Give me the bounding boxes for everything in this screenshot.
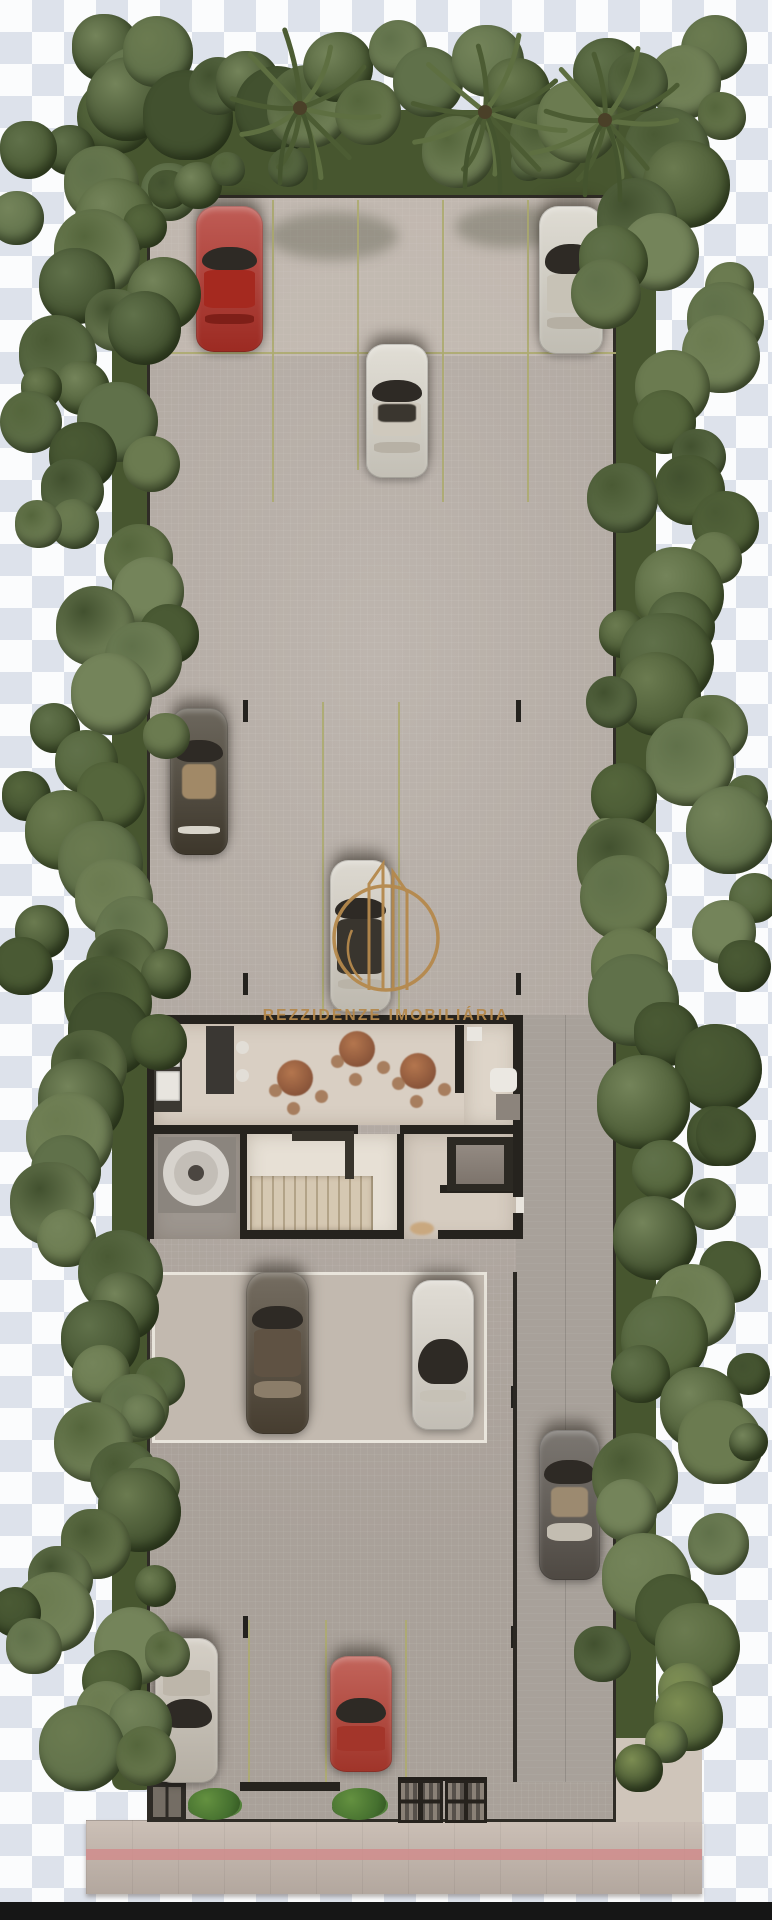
car-gray-right	[539, 1430, 600, 1580]
car-windshield	[544, 1460, 594, 1484]
pantry-sink	[490, 1068, 517, 1092]
building-wall	[397, 1134, 404, 1239]
bottom-black-bar	[0, 1902, 772, 1920]
dining-chair	[377, 1061, 390, 1074]
dining-chair	[269, 1084, 282, 1097]
bbq-grill	[398, 1780, 443, 1823]
tree-canopy	[574, 1626, 631, 1683]
entry-bush	[332, 1788, 386, 1820]
palm-trunk-icon	[478, 105, 492, 119]
site-plan-render: REZZIDENZE IMOBILIÁRIA	[0, 0, 772, 1920]
car-windshield	[336, 1698, 387, 1724]
emblem-tower-icon	[369, 864, 383, 990]
tree-canopy	[135, 1565, 177, 1607]
car-roof	[337, 1726, 384, 1752]
car-white-suv-covered	[412, 1280, 474, 1430]
stall-line-vertical	[325, 1620, 327, 1782]
palm-frond-icon	[478, 46, 486, 112]
car-roof	[254, 1329, 302, 1378]
car-white-sedan-top	[366, 344, 428, 478]
tree-canopy	[686, 786, 772, 873]
utility-box	[148, 1782, 186, 1822]
car-rear-window	[420, 1390, 466, 1402]
tree-canopy	[597, 1055, 690, 1148]
car-red-suv-top-left	[196, 206, 263, 352]
dining-table	[277, 1060, 313, 1096]
stall-tick	[243, 700, 248, 722]
palm-trunk-icon	[598, 113, 612, 127]
tree-canopy	[15, 500, 62, 547]
tree-canopy	[596, 1479, 657, 1540]
palm-tree	[205, 13, 395, 203]
stall-tick	[516, 700, 521, 722]
car-brown-covered	[246, 1272, 309, 1434]
kitchen-appliance	[156, 1071, 180, 1101]
car-windshield	[372, 380, 423, 401]
tree-canopy	[123, 436, 180, 493]
bbq-grill	[445, 1780, 487, 1823]
car-interior	[551, 1487, 588, 1517]
tree-canopy	[586, 676, 637, 727]
stall-line-vertical	[272, 352, 274, 502]
reception-bench	[292, 1131, 354, 1141]
palm-shadow	[268, 212, 398, 260]
dining-chair	[331, 1055, 344, 1068]
patio-rug-center	[188, 1165, 204, 1181]
car-red-bottom	[330, 1656, 392, 1772]
pantry-cabinet	[496, 1094, 520, 1120]
emblem-arc-icon	[348, 930, 362, 980]
brand-emblem: REZZIDENZE IMOBILIÁRIA	[246, 842, 526, 1032]
tree-canopy	[0, 191, 44, 246]
palm-frond-icon	[300, 67, 364, 108]
entry-bush	[188, 1788, 240, 1820]
tree-canopy	[571, 259, 641, 329]
bar-stool	[236, 1069, 249, 1082]
stall-line-vertical	[248, 1620, 250, 1782]
stall-line-vertical	[527, 200, 529, 352]
tree-canopy	[39, 1705, 126, 1792]
door-mark	[516, 1197, 524, 1213]
dining-chair	[410, 1095, 423, 1108]
car-rear-window	[178, 826, 221, 835]
tree-canopy	[688, 1513, 749, 1574]
building-wall	[438, 1230, 523, 1239]
brand-text: REZZIDENZE IMOBILIÁRIA	[263, 1007, 509, 1024]
tree-canopy	[587, 463, 657, 533]
palm-tree	[510, 25, 700, 215]
building-wall	[455, 1025, 464, 1093]
stall-line-vertical	[442, 352, 444, 502]
car-rear-window	[205, 314, 255, 324]
dining-table	[339, 1031, 375, 1067]
palm-frond-icon	[429, 65, 485, 112]
bar-stool	[236, 1041, 249, 1054]
car-windshield	[252, 1306, 304, 1329]
kitchen-island	[206, 1026, 234, 1094]
car-roof	[204, 270, 255, 308]
car-rear-window	[547, 1523, 592, 1541]
stall-line-vertical	[527, 352, 529, 502]
dining-chair	[438, 1083, 451, 1096]
tree-canopy	[632, 1140, 692, 1200]
building-wall	[240, 1134, 247, 1239]
car-rear-window	[254, 1381, 301, 1399]
stall-line-vertical	[272, 200, 274, 352]
stall-line-vertical	[357, 352, 359, 470]
dining-table	[400, 1053, 436, 1089]
building-wall	[243, 1230, 400, 1239]
brand-watermark: REZZIDENZE IMOBILIÁRIA	[246, 842, 526, 1032]
tree-canopy	[718, 940, 770, 992]
elevator-cab	[456, 1145, 504, 1184]
palm-frond-icon	[605, 120, 677, 124]
tree-canopy	[145, 1631, 190, 1676]
building-wall	[400, 1125, 523, 1134]
dining-chair	[315, 1090, 328, 1103]
car-rear-window	[374, 442, 420, 453]
car-windshield	[418, 1339, 469, 1384]
tree-canopy	[116, 1726, 176, 1786]
dining-chair	[349, 1073, 362, 1086]
lane-wall	[513, 1272, 517, 1782]
dining-chair	[287, 1102, 300, 1115]
tree-canopy	[108, 291, 181, 364]
sidewalk	[86, 1820, 702, 1894]
palm-frond-icon	[605, 120, 647, 168]
tree-canopy	[729, 1423, 767, 1461]
entry-wall	[240, 1782, 340, 1791]
staircase	[250, 1176, 373, 1230]
car-windshield	[202, 247, 257, 270]
stall-line-vertical	[442, 200, 444, 352]
stall-tick	[243, 1616, 248, 1638]
dining-chair	[392, 1077, 405, 1090]
palm-frond-icon	[300, 108, 379, 117]
palm-trunk-icon	[293, 101, 307, 115]
tree-canopy	[131, 1014, 187, 1070]
tree-canopy	[0, 121, 57, 178]
reception-bench	[345, 1141, 354, 1179]
tree-canopy	[143, 713, 190, 760]
car-interior	[182, 764, 217, 799]
car-interior	[378, 404, 415, 421]
stall-line-vertical	[357, 200, 359, 352]
stall-line-vertical	[405, 1620, 407, 1782]
deco-blob	[410, 1222, 434, 1235]
sidewalk-pink-stripe	[86, 1849, 702, 1860]
tree-canopy	[696, 1106, 757, 1167]
tree-canopy	[71, 653, 152, 734]
